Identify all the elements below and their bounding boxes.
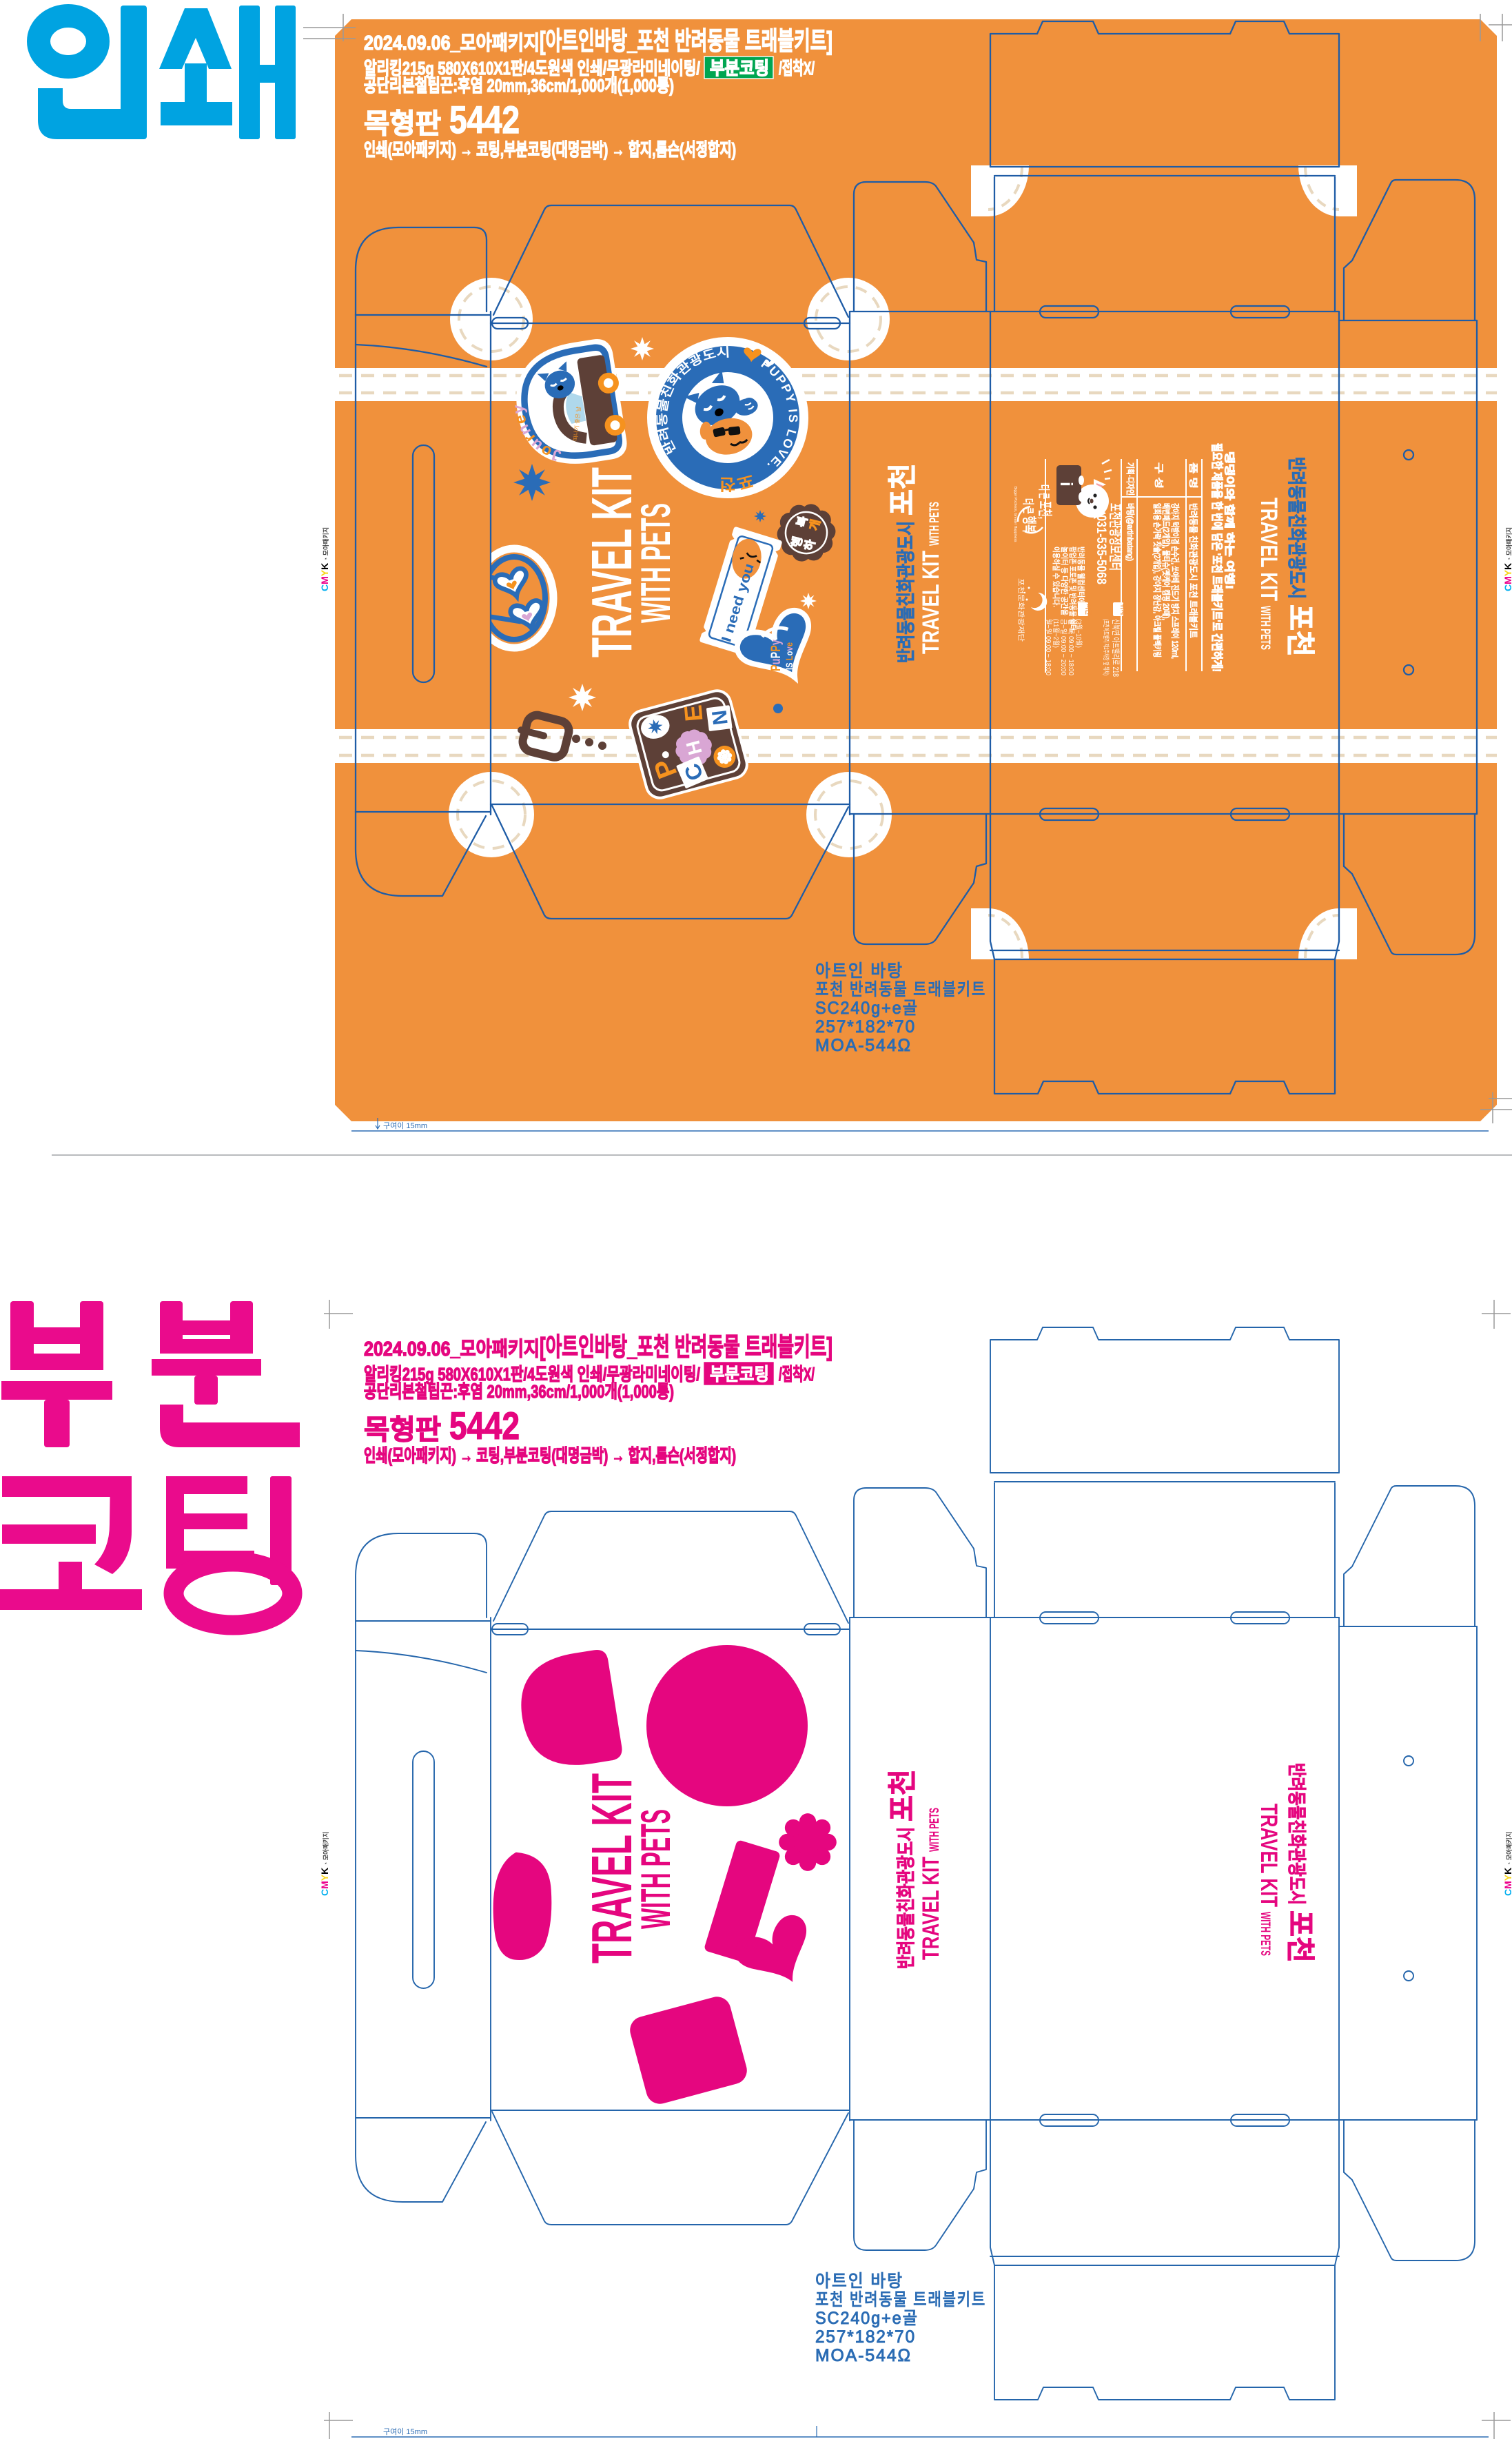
svg-text:포천관광정보센터: 포천관광정보센터 <box>1107 503 1123 571</box>
svg-text:인쇄(모아패키지) → 코팅,부분코팅(대명금박) → 합지: 인쇄(모아패키지) → 코팅,부분코팅(대명금박) → 합지,톰슨(서정합지) <box>364 1445 736 1466</box>
svg-text:TRAVEL KITWITH PETS: TRAVEL KITWITH PETS <box>1256 1804 1282 1956</box>
svg-text:SC240g+e골: SC240g+e골 <box>815 999 919 1018</box>
svg-text:시간: 시간 <box>1085 604 1092 615</box>
svg-text:/접착X/: /접착X/ <box>779 1364 815 1385</box>
svg-text:인쇄(모아패키지) → 코팅,부분코팅(대명금박) → 합지: 인쇄(모아패키지) → 코팅,부분코팅(대명금박) → 합지,톰슨(서정합지) <box>364 139 736 160</box>
svg-text:WITH PETS: WITH PETS <box>633 1809 679 1929</box>
svg-text:257*182*70: 257*182*70 <box>815 2327 916 2347</box>
svg-text:/접착X/: /접착X/ <box>779 58 815 79</box>
svg-text:아트인 바탕: 아트인 바탕 <box>815 2272 903 2291</box>
svg-text:T. 031-535-5068: T. 031-535-5068 <box>1094 503 1108 584</box>
svg-text:CMYK ◔ 모아패키지: CMYK ◔ 모아패키지 <box>1502 1832 1512 1896</box>
svg-text:배변패드(2개입), 물티슈(펫케어 캠핑 20매),: 배변패드(2개입), 물티슈(펫케어 캠핑 20매), <box>1161 503 1171 620</box>
svg-text:구여이 15mm: 구여이 15mm <box>383 2427 427 2436</box>
svg-text:월~일 09:00 ~ 18:00: 월~일 09:00 ~ 18:00 <box>1044 619 1052 675</box>
svg-text:아트인 바탕: 아트인 바탕 <box>815 961 903 981</box>
svg-text:(포천아트밸리 제2주차장 앞 위치): (포천아트밸리 제2주차장 앞 위치) <box>1103 619 1110 675</box>
svg-text:MOA-544Ω: MOA-544Ω <box>815 2346 912 2365</box>
svg-text:더 큰 포천,: 더 큰 포천, <box>1036 484 1052 519</box>
svg-text:구 성: 구 성 <box>1154 462 1164 489</box>
svg-text:Bigger Pocheon, Greater Happin: Bigger Pocheon, Greater Happiness <box>1013 487 1017 542</box>
svg-text:반려동물친화관광도시포천: 반려동물친화관광도시포천 <box>886 1769 919 1969</box>
svg-text:댕댕이와 함께 하는 여행!: 댕댕이와 함께 하는 여행! <box>1223 451 1236 589</box>
svg-text:포천문화관광재단: 포천문화관광재단 <box>1016 578 1025 642</box>
svg-text:SC240g+e골: SC240g+e골 <box>815 2309 919 2328</box>
svg-text:포천 반려동물 트래블키트: 포천 반려동물 트래블키트 <box>815 980 986 999</box>
svg-text:MOA-544Ω: MOA-544Ω <box>815 1036 912 1055</box>
svg-text:부분코팅: 부분코팅 <box>710 1364 769 1385</box>
svg-text:CMYK ◔ 모아패키지: CMYK ◔ 모아패키지 <box>319 527 330 591</box>
svg-text:IS Love: IS Love <box>784 642 795 670</box>
svg-text:257*182*70: 257*182*70 <box>815 1017 916 1037</box>
svg-text:i: i <box>1056 482 1076 487</box>
svg-text:2024.09.06_모아패키지[아트인바탕_포천 반려동물: 2024.09.06_모아패키지[아트인바탕_포천 반려동물 트래블키트] <box>364 1333 832 1361</box>
svg-text:더 큰 행복: 더 큰 행복 <box>1021 498 1036 533</box>
svg-text:이용하실 수 있습니다.: 이용하실 수 있습니다. <box>1052 547 1061 607</box>
svg-text:E: E <box>679 704 708 722</box>
svg-text:부분코팅: 부분코팅 <box>710 58 769 79</box>
svg-text:바탕(@artinbatang): 바탕(@artinbatang) <box>1125 503 1135 561</box>
svg-text:(11월~2월): (11월~2월) <box>1052 619 1060 648</box>
svg-text:기획·디자인: 기획·디자인 <box>1125 462 1135 496</box>
svg-text:공단리본철팁끈:후염 20mm,36cm/1,000개(1,: 공단리본철팁끈:후염 20mm,36cm/1,000개(1,000통) <box>364 1381 674 1402</box>
svg-text:놀이터 등 다양한 공간을: 놀이터 등 다양한 공간을 <box>1060 547 1069 615</box>
svg-text:구여이 15mm: 구여이 15mm <box>383 1121 427 1130</box>
svg-text:WITH PETS: WITH PETS <box>633 503 679 623</box>
svg-text:일회용 손가락 칫솔(2개입), 강아지 장난감, 아크릴: 일회용 손가락 칫솔(2개입), 강아지 장난감, 아크릴 풀백키링 <box>1152 503 1162 657</box>
svg-text:필요한 제품을 한 번에 담은 '포천 트래블키트'로 간편: 필요한 제품을 한 번에 담은 '포천 트래블키트'로 간편하게! <box>1210 443 1223 672</box>
svg-text:위치: 위치 <box>1120 604 1127 615</box>
svg-text:금~일 09:00 ~ 20:00: 금~일 09:00 ~ 20:00 <box>1059 619 1067 675</box>
svg-text:반려동물친화관광도시포천: 반려동물친화관광도시포천 <box>1284 1763 1316 1963</box>
svg-text:월~목 09:00 ~ 18:00: 월~목 09:00 ~ 18:00 <box>1067 619 1075 675</box>
svg-text:공단리본철팁끈:후염 20mm,36cm/1,000개(1,: 공단리본철팁끈:후염 20mm,36cm/1,000개(1,000통) <box>364 75 674 96</box>
svg-text:CMYK ◔ 모아패키지: CMYK ◔ 모아패키지 <box>1502 527 1512 591</box>
svg-text:CMYK ◔ 모아패키지: CMYK ◔ 모아패키지 <box>319 1832 330 1896</box>
svg-text:포천 반려동물 트래블키트: 포천 반려동물 트래블키트 <box>815 2290 986 2309</box>
svg-text:강아지 턱받이겸 손수건, 쏘아베 진드기 방지 스프레이: 강아지 턱받이겸 손수건, 쏘아베 진드기 방지 스프레이 120ml, <box>1170 503 1180 659</box>
svg-text:반려동물 친화관광도시 포천 트래블키트: 반려동물 친화관광도시 포천 트래블키트 <box>1188 503 1198 638</box>
svg-text:신북면 아트밸리로 218: 신북면 아트밸리로 218 <box>1111 619 1121 677</box>
svg-text:TRAVEL KITWITH PETS: TRAVEL KITWITH PETS <box>918 1808 944 1960</box>
svg-text:목형판5442: 목형판5442 <box>364 1404 520 1447</box>
svg-text:(3월~10월): (3월~10월) <box>1074 619 1083 648</box>
svg-text:품 명: 품 명 <box>1188 462 1198 489</box>
svg-text:반려동물 웰컴센터에서: 반려동물 웰컴센터에서 <box>1076 547 1085 610</box>
svg-text:PuPPy: PuPPy <box>769 640 784 671</box>
svg-text:N: N <box>708 708 732 726</box>
